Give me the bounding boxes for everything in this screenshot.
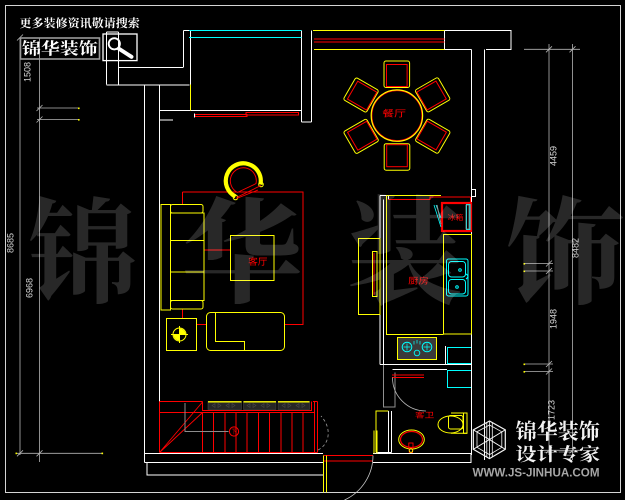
svg-text:4459: 4459	[549, 146, 559, 166]
svg-text:6968: 6968	[25, 278, 35, 298]
svg-text:WWW.JS-JINHUA.COM: WWW.JS-JINHUA.COM	[473, 468, 600, 480]
svg-text:1948: 1948	[549, 309, 559, 329]
svg-text:8685: 8685	[6, 233, 16, 253]
svg-text:1723: 1723	[547, 400, 557, 420]
svg-text:1508: 1508	[23, 62, 33, 82]
